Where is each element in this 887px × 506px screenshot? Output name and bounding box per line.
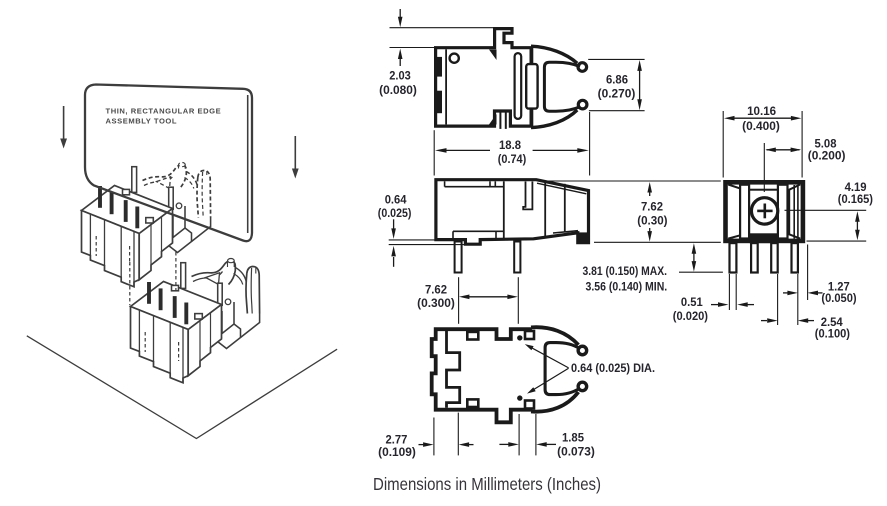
svg-text:7.62: 7.62 (425, 285, 447, 297)
svg-text:Dimensions in Millimeters (Inc: Dimensions in Millimeters (Inches) (373, 474, 601, 494)
svg-text:(0.109): (0.109) (378, 447, 416, 459)
svg-text:THIN, RECTANGULAR EDGE: THIN, RECTANGULAR EDGE (106, 107, 222, 116)
svg-text:(0.74): (0.74) (498, 154, 527, 166)
svg-text:2.54: 2.54 (821, 317, 844, 329)
svg-text:0.64: 0.64 (385, 195, 407, 207)
svg-text:(0.200): (0.200) (808, 151, 846, 163)
svg-text:18.8: 18.8 (499, 140, 522, 152)
svg-text:7.62: 7.62 (641, 201, 663, 213)
svg-text:10.16: 10.16 (747, 106, 776, 118)
svg-text:1.27: 1.27 (828, 281, 850, 293)
svg-text:(0.165): (0.165) (838, 194, 873, 206)
svg-text:(0.025): (0.025) (378, 208, 412, 220)
svg-text:(0.073): (0.073) (557, 446, 595, 458)
svg-text:2.03: 2.03 (389, 71, 411, 83)
svg-text:1.85: 1.85 (562, 433, 585, 445)
svg-text:(0.300): (0.300) (417, 298, 455, 310)
svg-text:(0.080): (0.080) (379, 85, 417, 97)
svg-text:0.51: 0.51 (681, 297, 703, 309)
svg-text:4.19: 4.19 (845, 182, 867, 194)
svg-text:(0.020): (0.020) (673, 311, 708, 323)
svg-text:3.81 (0.150) MAX.: 3.81 (0.150) MAX. (583, 266, 668, 278)
svg-text:(0.100): (0.100) (815, 329, 850, 341)
svg-text:5.08: 5.08 (815, 139, 838, 151)
svg-text:(0.270): (0.270) (598, 88, 636, 100)
svg-text:3.56 (0.140) MIN.: 3.56 (0.140) MIN. (586, 282, 668, 294)
svg-text:0.64 (0.025) DIA.: 0.64 (0.025) DIA. (571, 363, 655, 375)
svg-text:2.77: 2.77 (386, 434, 408, 446)
svg-text:(0.400): (0.400) (742, 121, 780, 133)
svg-text:(0.050): (0.050) (821, 293, 856, 305)
svg-text:6.86: 6.86 (606, 74, 628, 86)
svg-text:(0.30): (0.30) (637, 216, 667, 228)
svg-text:ASSEMBLY TOOL: ASSEMBLY TOOL (106, 117, 178, 126)
